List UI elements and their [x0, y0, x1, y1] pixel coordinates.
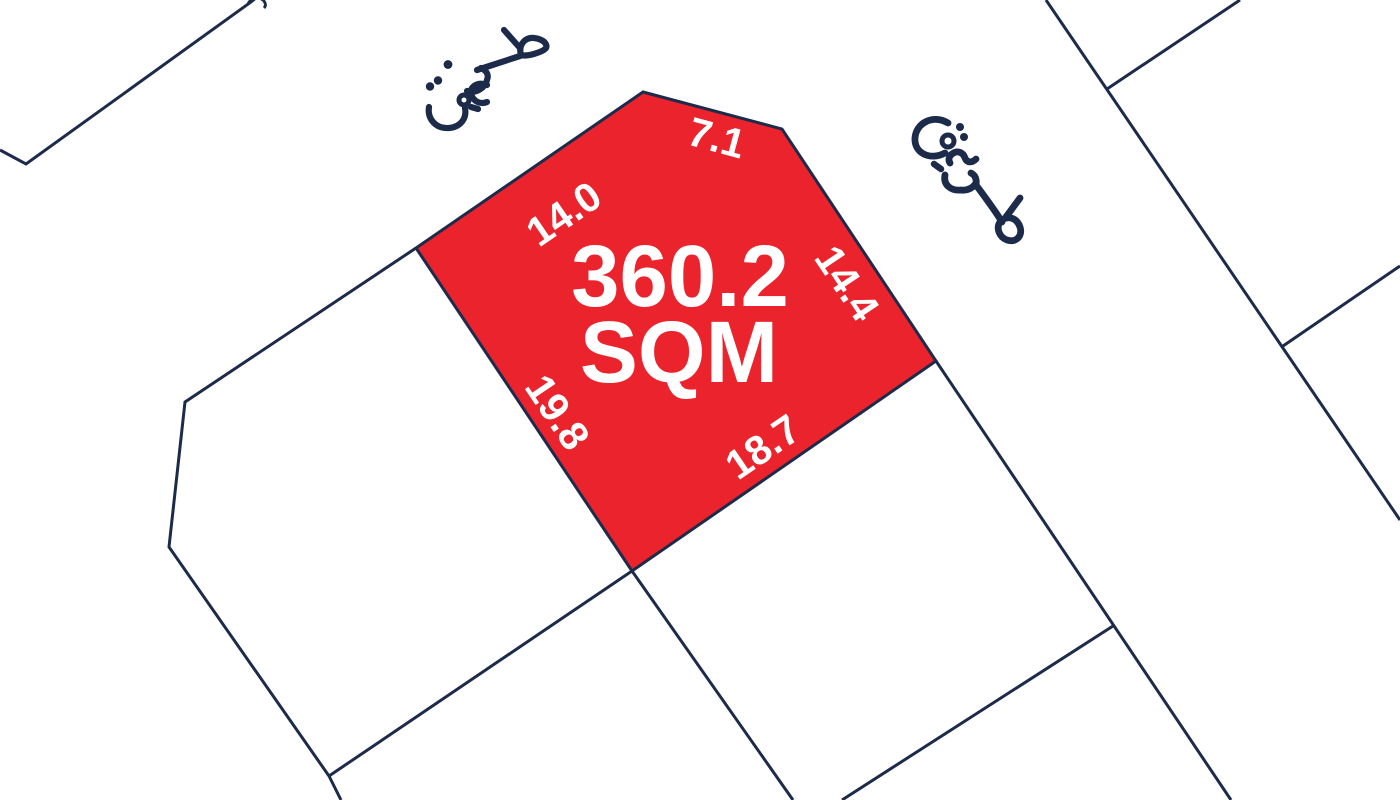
svg-text:SQM: SQM: [580, 304, 778, 401]
